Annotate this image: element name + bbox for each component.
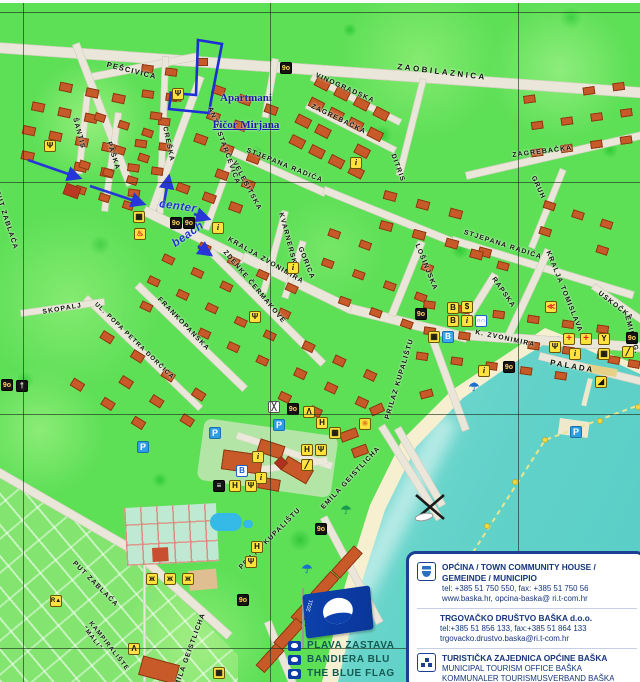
legend-title: GEMEINDE / MUNICIPIO bbox=[442, 573, 596, 584]
grid-line-horizontal bbox=[0, 12, 640, 13]
legend-contact: tel: +385 51 750 550, fax: +385 51 750 5… bbox=[442, 584, 596, 594]
tourism-office-icon bbox=[417, 653, 436, 672]
legend-title: TURISTIČKA ZAJEDNICA OPĆINE BAŠKA bbox=[442, 653, 614, 664]
legend-contact: www.baska.hr, opcina-baska@ ri.t-com.hr bbox=[442, 594, 596, 604]
legend-title: TRGOVAČKO DRUŠTVO BAŠKA d.o.o. bbox=[440, 613, 592, 624]
flag-wave-emblem bbox=[322, 596, 354, 626]
flag-caption-row: PLAVA ZASTAVA bbox=[288, 640, 395, 651]
grid-line-horizontal bbox=[0, 182, 640, 183]
grid-line-vertical bbox=[23, 0, 24, 682]
blue-flag-icon: 2011 bbox=[302, 585, 373, 638]
flag-caption: THE BLUE FLAG bbox=[307, 668, 395, 679]
map-top-margin bbox=[0, 0, 640, 3]
blue-flag-block: 2011 PLAVA ZASTAVA BANDIERA BLU THE BLUE… bbox=[288, 584, 406, 682]
flag-caption: BANDIERA BLU bbox=[307, 654, 390, 665]
legend-row-tourism-office: TURISTIČKA ZAJEDNICA OPĆINE BAŠKA MUNICI… bbox=[417, 653, 637, 682]
flag-caption-row: THE BLUE FLAG bbox=[288, 668, 395, 679]
grid-line-horizontal bbox=[0, 414, 640, 415]
mini-flag-icon bbox=[288, 655, 301, 665]
legend-divider bbox=[417, 648, 637, 649]
flag-year: 2011 bbox=[306, 599, 315, 612]
flag-caption: PLAVA ZASTAVA bbox=[307, 640, 395, 651]
flag-caption-row: BANDIERA BLU bbox=[288, 654, 390, 665]
mini-flag-icon bbox=[288, 641, 301, 651]
legend-row-municipality: OPĆINA / TOWN COMMUNITY HOUSE / GEMEINDE… bbox=[417, 562, 637, 604]
legend-subtitle: MUNICIPAL TOURISM OFFICE BAŠKA bbox=[442, 664, 614, 674]
baska-town-map: PEŠCIVICAZAOBILAZNICAVINOGRADSKAZAGREBAČ… bbox=[0, 0, 640, 682]
legend-row-company: TRGOVAČKO DRUŠTVO BAŠKA d.o.o. tel:+385 … bbox=[417, 613, 637, 644]
legend-box: OPĆINA / TOWN COMMUNITY HOUSE / GEMEINDE… bbox=[406, 551, 640, 682]
legend-divider bbox=[417, 608, 637, 609]
legend-contact: trgovacko.drustvo.baska@ri.t-com.hr bbox=[440, 634, 592, 644]
legend-subtitle: KOMMUNALER TOURISMUSVERBAND BAŠKA bbox=[442, 674, 614, 682]
town-crest-icon bbox=[417, 562, 436, 581]
grid-line-vertical bbox=[270, 0, 271, 682]
legend-title: OPĆINA / TOWN COMMUNITY HOUSE / bbox=[442, 562, 596, 573]
legend-contact: tel:+385 51 856 133, fax:+385 51 864 133 bbox=[440, 624, 592, 634]
mini-flag-icon bbox=[288, 669, 301, 679]
